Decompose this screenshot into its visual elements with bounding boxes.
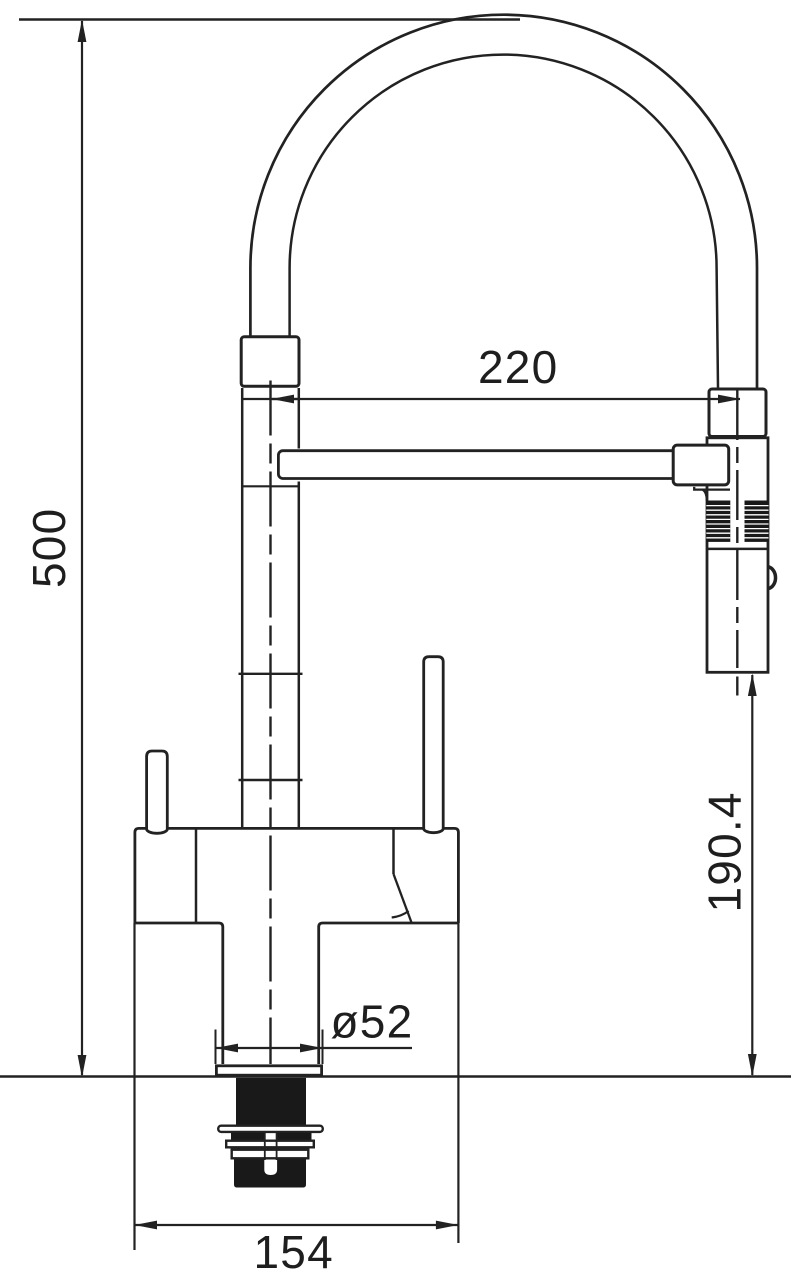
svg-text:190.4: 190.4 — [699, 791, 751, 912]
svg-text:500: 500 — [23, 508, 75, 588]
svg-text:ø52: ø52 — [331, 996, 414, 1048]
svg-text:220: 220 — [478, 341, 558, 393]
svg-text:154: 154 — [254, 1226, 334, 1278]
